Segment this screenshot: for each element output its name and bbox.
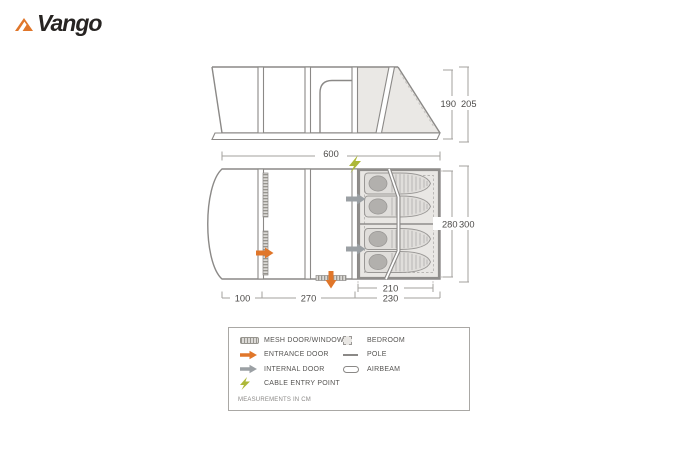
floor-plan-view: 280 300 210 100 bbox=[208, 155, 485, 304]
legend-item-mesh-door-window: MESH DOOR/WINDOW bbox=[240, 335, 344, 346]
bedroom-icon bbox=[343, 336, 364, 345]
front-porch-value: 100 bbox=[235, 294, 251, 304]
side-height-dimension: 190 205 bbox=[433, 67, 485, 142]
legend-item-airbeam: AIRBEAM bbox=[343, 364, 400, 375]
legend-item-cable-entry-point: CABLE ENTRY POINT bbox=[240, 378, 340, 389]
airbeam-icon bbox=[343, 366, 364, 373]
side-door-outline bbox=[320, 81, 353, 134]
legend-label: ENTRANCE DOOR bbox=[264, 351, 329, 358]
mesh-door-window-icon bbox=[240, 337, 261, 344]
legend-label: MESH DOOR/WINDOW bbox=[264, 337, 344, 344]
side-bedroom-shaded-area bbox=[358, 68, 440, 133]
living-area-value: 270 bbox=[301, 294, 317, 304]
legend-item-entrance-door: ENTRANCE DOOR bbox=[240, 349, 329, 360]
floorplan-depth-inner-value: 280 bbox=[442, 220, 458, 230]
legend-item-pole: POLE bbox=[343, 349, 387, 360]
side-length-value: 600 bbox=[323, 149, 339, 159]
floorplan-depth-dimension: 280 300 bbox=[433, 166, 485, 282]
mesh-door-window-upper bbox=[263, 173, 268, 217]
internal-door-icon bbox=[240, 364, 261, 374]
pole-icon bbox=[343, 354, 364, 356]
entrance-door-icon bbox=[240, 350, 261, 360]
side-groundsheet bbox=[212, 133, 440, 140]
legend-box: MESH DOOR/WINDOW ENTRANCE DOOR INTERNAL … bbox=[228, 327, 470, 411]
side-height-inner-value: 190 bbox=[440, 99, 456, 109]
legend-label: POLE bbox=[367, 351, 387, 358]
legend-label: AIRBEAM bbox=[367, 366, 400, 373]
legend-item-bedroom: BEDROOM bbox=[343, 335, 405, 346]
floorplan-depth-outer-value: 300 bbox=[459, 220, 475, 230]
bedroom-width-outer-value: 230 bbox=[383, 294, 399, 304]
floorplan-bottom-dimensions: 100 270 230 bbox=[222, 292, 440, 305]
tent-diagram-page: Vango bbox=[0, 0, 700, 467]
measurements-note: MEASUREMENTS IN CM bbox=[238, 397, 311, 403]
side-length-dimension: 600 bbox=[222, 146, 440, 161]
cable-entry-point-icon bbox=[240, 377, 261, 390]
legend-label: INTERNAL DOOR bbox=[264, 366, 325, 373]
side-height-outer-value: 205 bbox=[461, 99, 477, 109]
legend-item-internal-door: INTERNAL DOOR bbox=[240, 364, 325, 375]
side-elevation-view: 190 205 600 bbox=[212, 67, 485, 161]
legend-label: CABLE ENTRY POINT bbox=[264, 380, 340, 387]
legend-label: BEDROOM bbox=[367, 337, 405, 344]
